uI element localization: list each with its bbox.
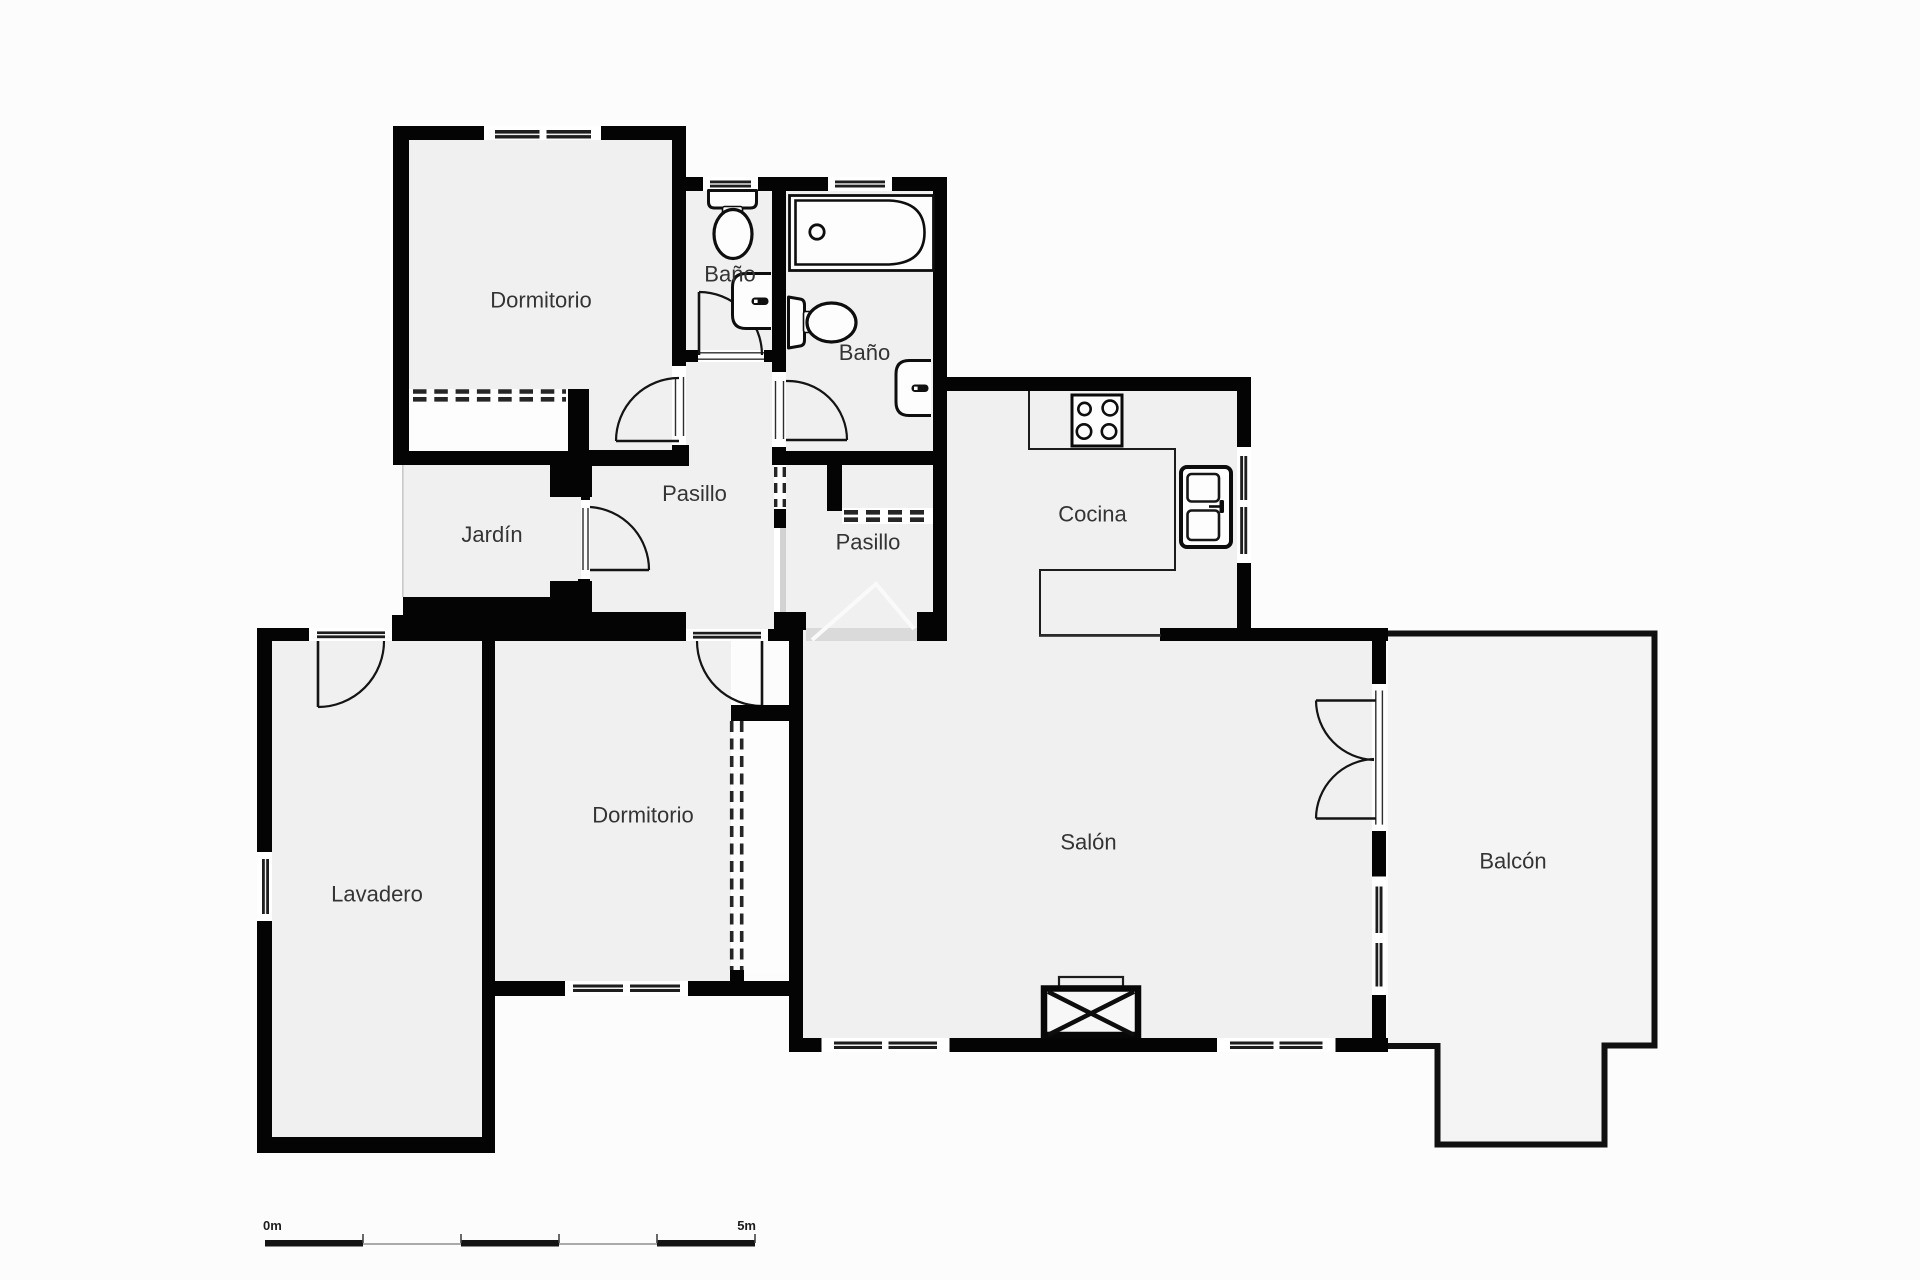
svg-text:Baño: Baño — [704, 262, 755, 287]
svg-text:Baño: Baño — [839, 340, 890, 365]
svg-text:Jardín: Jardín — [461, 522, 522, 547]
svg-text:Pasillo: Pasillo — [836, 530, 901, 555]
svg-text:Balcón: Balcón — [1479, 849, 1546, 874]
svg-text:Cocina: Cocina — [1058, 502, 1127, 527]
svg-text:Salón: Salón — [1060, 830, 1116, 855]
svg-text:Dormitorio: Dormitorio — [592, 803, 693, 828]
svg-text:Pasillo: Pasillo — [662, 481, 727, 506]
svg-text:Lavadero: Lavadero — [331, 882, 423, 907]
svg-text:5m: 5m — [737, 1218, 756, 1233]
svg-text:Dormitorio: Dormitorio — [490, 288, 591, 313]
svg-text:0m: 0m — [263, 1218, 282, 1233]
